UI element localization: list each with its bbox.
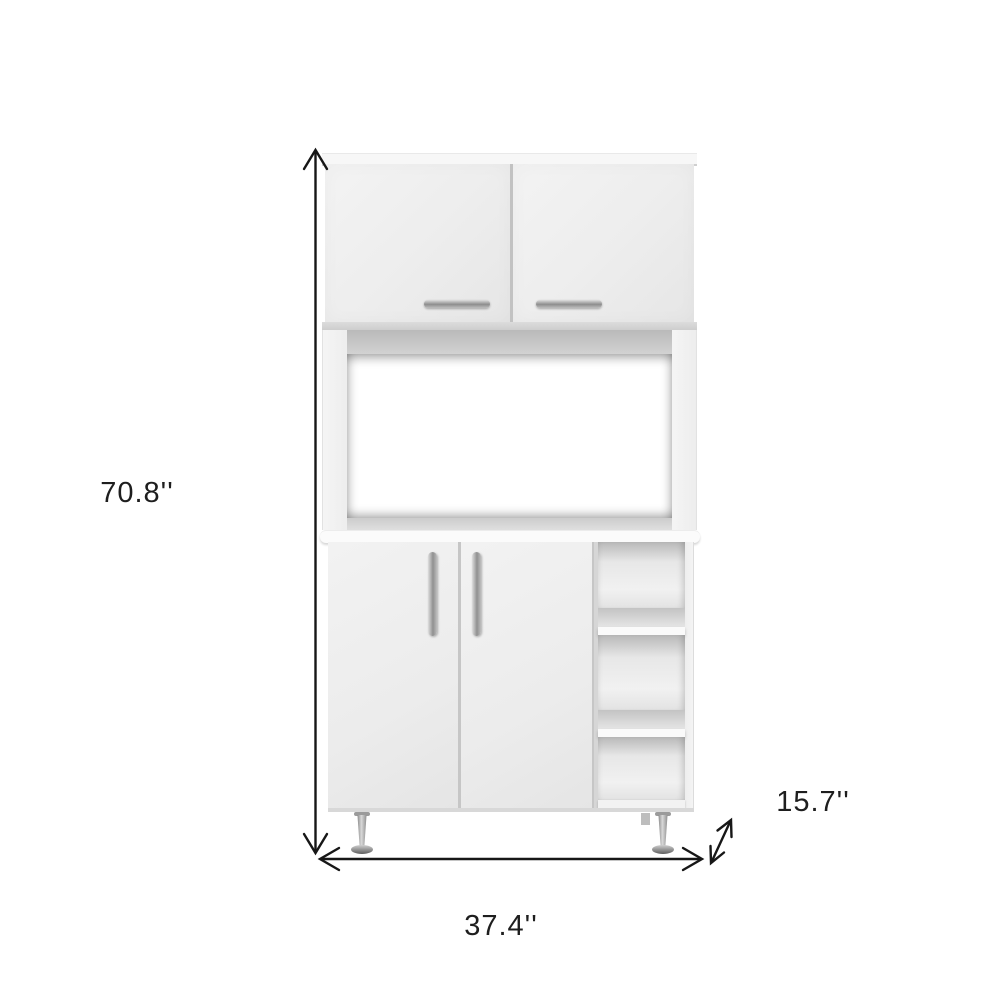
lower-door-right-handle xyxy=(472,552,481,636)
microwave-open-compartment xyxy=(322,330,697,530)
leg-foot xyxy=(351,845,373,854)
lower-door-left xyxy=(328,542,458,808)
leg-shaft xyxy=(657,815,669,846)
upper-door-left xyxy=(325,164,510,322)
hutch-top-shadow xyxy=(347,330,672,354)
width-dimension-label: 37.4'' xyxy=(464,910,538,943)
shelf-board-front-edge xyxy=(598,627,685,635)
hutch-right-pillar xyxy=(671,330,697,530)
hutch-left-pillar xyxy=(322,330,348,530)
shelf-board-1 xyxy=(598,608,685,635)
shelf-board-top-face xyxy=(598,710,685,729)
lower-door-left-handle xyxy=(428,552,437,636)
leg-shaft xyxy=(356,815,368,846)
width-dimension-arrow xyxy=(320,848,702,870)
leg-front-right xyxy=(650,812,676,854)
shelf-board-front-edge xyxy=(598,729,685,737)
shelf-board-2 xyxy=(598,710,685,737)
shelf-side-panel xyxy=(684,542,694,808)
depth-dimension-arrow xyxy=(711,820,732,863)
height-dimension-label: 70.8'' xyxy=(100,477,174,510)
shelf-cubby-3 xyxy=(598,737,685,800)
upper-door-left-handle xyxy=(424,300,490,308)
shelf-board-top-face xyxy=(598,608,685,627)
open-shelf-column xyxy=(594,542,694,808)
shelf-bottom-board xyxy=(598,800,685,808)
depth-dimension-label: 15.7'' xyxy=(776,786,850,819)
lower-cabinet-bottom-edge xyxy=(328,808,694,812)
product-dimension-figure: 70.8'' 37.4'' 15.7'' xyxy=(0,0,1000,1000)
lower-cabinet xyxy=(320,530,700,812)
shelf-cubby-1 xyxy=(598,542,685,608)
hutch-bottom-shadow xyxy=(347,518,672,530)
upper-door-right xyxy=(513,164,694,322)
upper-door-area xyxy=(325,164,694,322)
leg-back-right xyxy=(641,813,650,825)
lower-cabinet-body xyxy=(328,542,694,808)
leg-foot xyxy=(652,845,674,854)
shelf-cubby-2 xyxy=(598,635,685,710)
upper-door-right-handle xyxy=(536,300,602,308)
upper-cabinet xyxy=(322,153,697,330)
leg-front-left xyxy=(349,812,375,854)
hutch-opening xyxy=(347,354,672,518)
upper-cabinet-bottom-edge xyxy=(322,322,697,330)
